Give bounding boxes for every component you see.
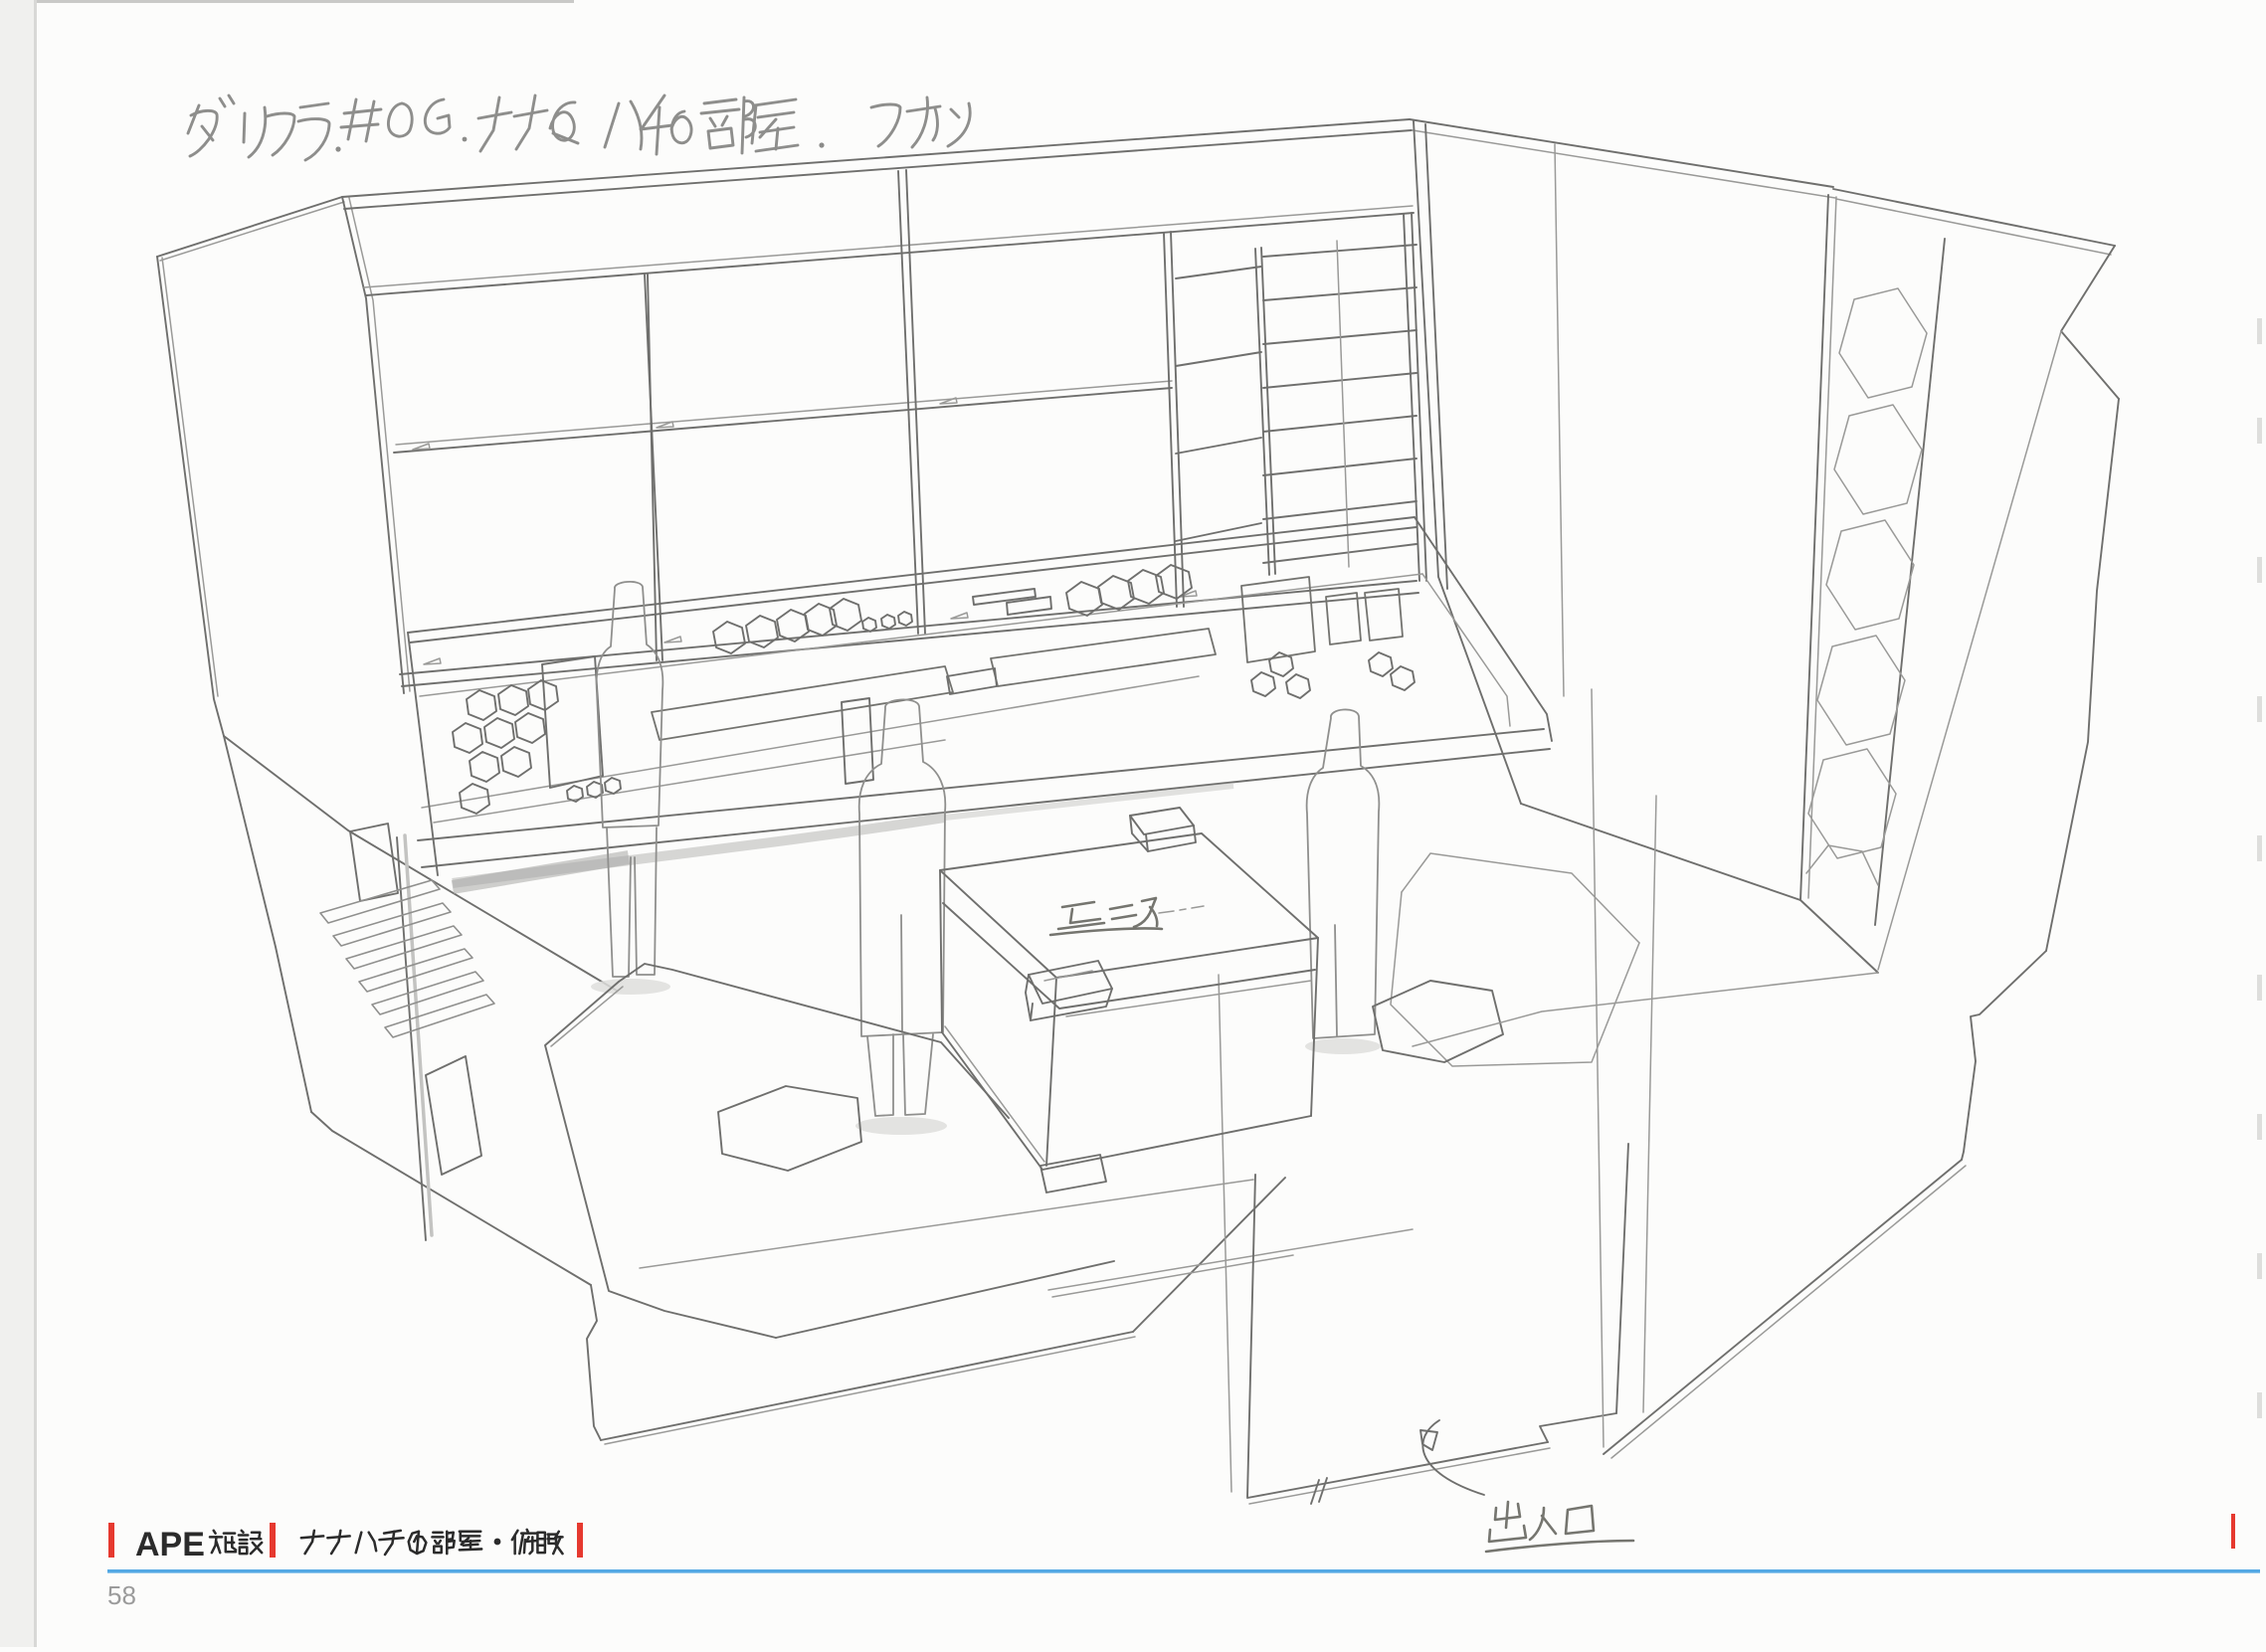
- svg-text:APE: APE: [135, 1526, 205, 1563]
- svg-text:58: 58: [107, 1580, 136, 1610]
